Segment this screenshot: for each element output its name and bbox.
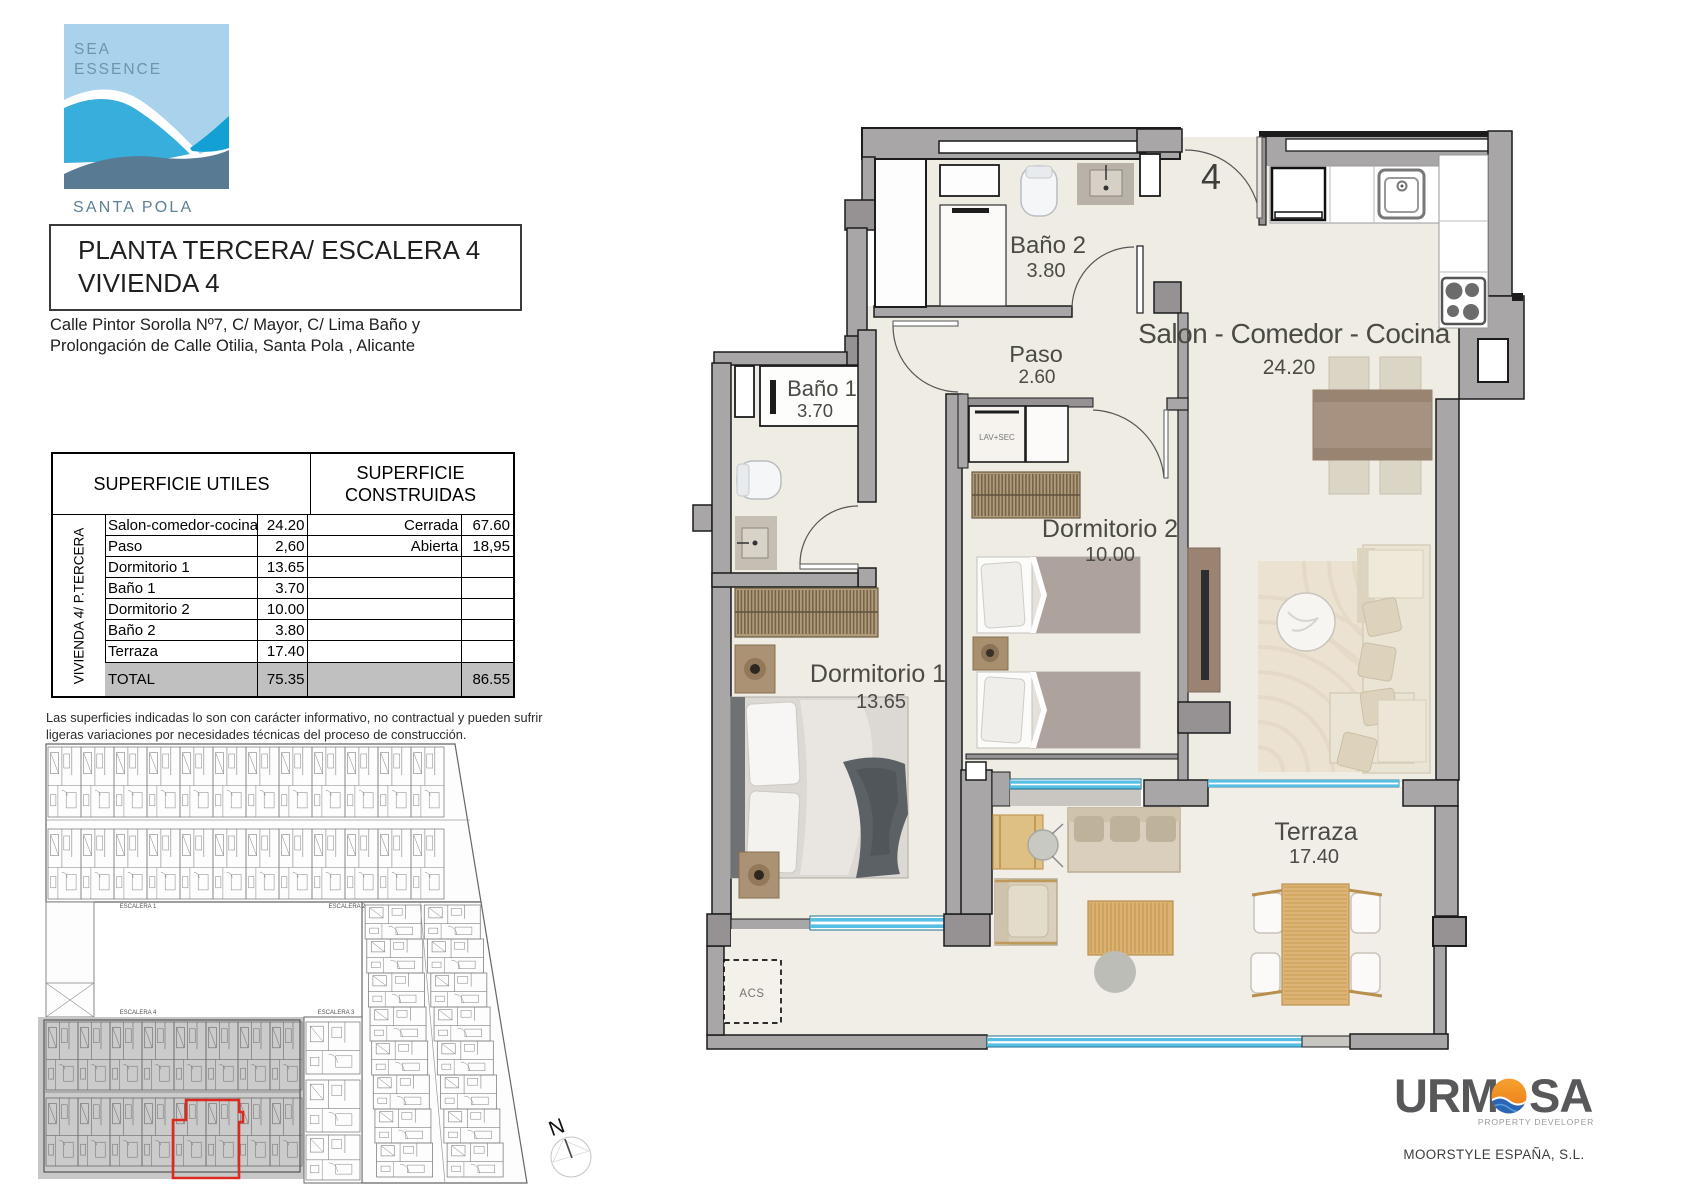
svg-text:10.00: 10.00 <box>1085 544 1135 566</box>
svg-text:N: N <box>546 1114 568 1141</box>
svg-text:PROPERTY DEVELOPER: PROPERTY DEVELOPER <box>1478 1117 1594 1127</box>
svg-text:URM: URM <box>1394 1069 1498 1122</box>
svg-text:ESSENCE: ESSENCE <box>74 61 162 78</box>
svg-text:Paso: Paso <box>1009 341 1063 367</box>
svg-text:Dormitorio 2: Dormitorio 2 <box>1042 515 1178 543</box>
svg-text:Salon - Comedor - Cocina: Salon - Comedor - Cocina <box>1138 318 1451 349</box>
svg-text:3.70: 3.70 <box>797 400 833 421</box>
svg-text:13.65: 13.65 <box>856 691 906 713</box>
svg-text:4: 4 <box>1201 156 1221 197</box>
svg-text:ACS: ACS <box>739 988 764 1000</box>
svg-text:ESCALERA 3: ESCALERA 3 <box>318 1010 355 1016</box>
svg-text:2.60: 2.60 <box>1019 367 1056 388</box>
svg-text:SANTA POLA: SANTA POLA <box>73 199 193 216</box>
svg-text:Terraza: Terraza <box>1274 818 1357 846</box>
svg-text:3.80: 3.80 <box>1027 260 1066 282</box>
svg-text:Dormitorio 1: Dormitorio 1 <box>810 660 946 688</box>
svg-text:LAV+SEC: LAV+SEC <box>979 433 1015 442</box>
svg-text:SEA: SEA <box>74 41 111 58</box>
svg-text:17.40: 17.40 <box>1289 846 1339 868</box>
svg-text:Baño 1: Baño 1 <box>787 376 857 401</box>
svg-text:MOORSTYLE ESPAÑA, S.L.: MOORSTYLE ESPAÑA, S.L. <box>1403 1147 1584 1162</box>
svg-text:24.20: 24.20 <box>1263 356 1316 379</box>
svg-text:SA: SA <box>1529 1069 1592 1122</box>
svg-text:Baño 2: Baño 2 <box>1010 232 1086 259</box>
svg-text:ESCALERA 2: ESCALERA 2 <box>329 904 366 910</box>
svg-text:ESCALERA 4: ESCALERA 4 <box>120 1010 157 1016</box>
svg-text:ESCALERA 1: ESCALERA 1 <box>120 904 157 910</box>
